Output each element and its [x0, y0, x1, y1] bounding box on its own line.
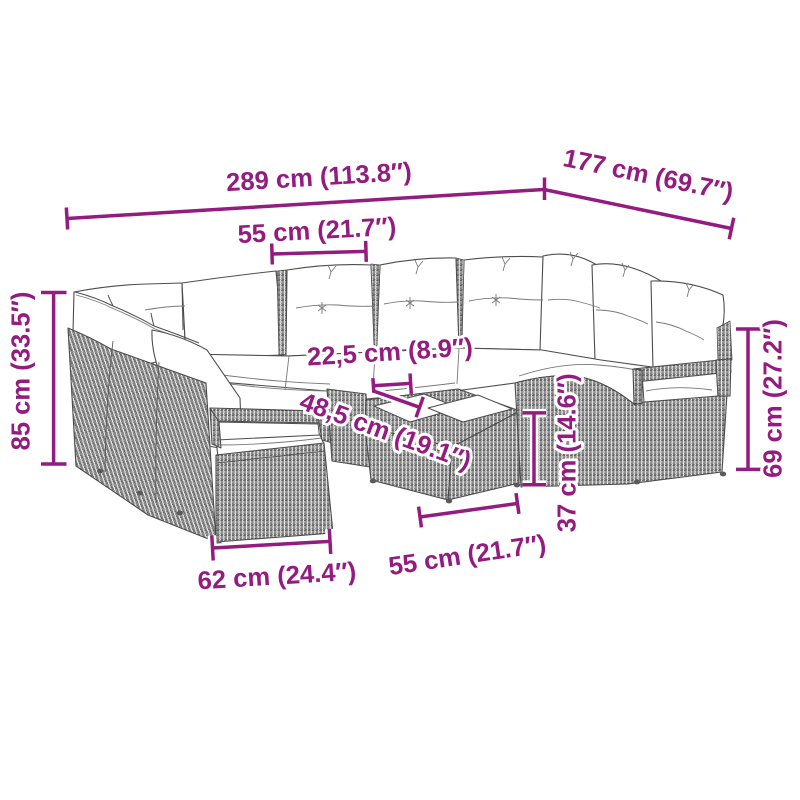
svg-text:62 cm (24.4″): 62 cm (24.4″) [197, 558, 357, 596]
svg-text:85 cm (33.5″): 85 cm (33.5″) [8, 292, 36, 451]
svg-text:37 cm (14.6″): 37 cm (14.6″) [554, 373, 582, 532]
svg-text:55 cm (21.7″): 55 cm (21.7″) [237, 213, 397, 249]
svg-text:55 cm (21.7″): 55 cm (21.7″) [387, 530, 548, 581]
svg-text:289 cm (113.8″): 289 cm (113.8″) [225, 158, 412, 197]
svg-text:69 cm (27.2″): 69 cm (27.2″) [760, 319, 788, 478]
